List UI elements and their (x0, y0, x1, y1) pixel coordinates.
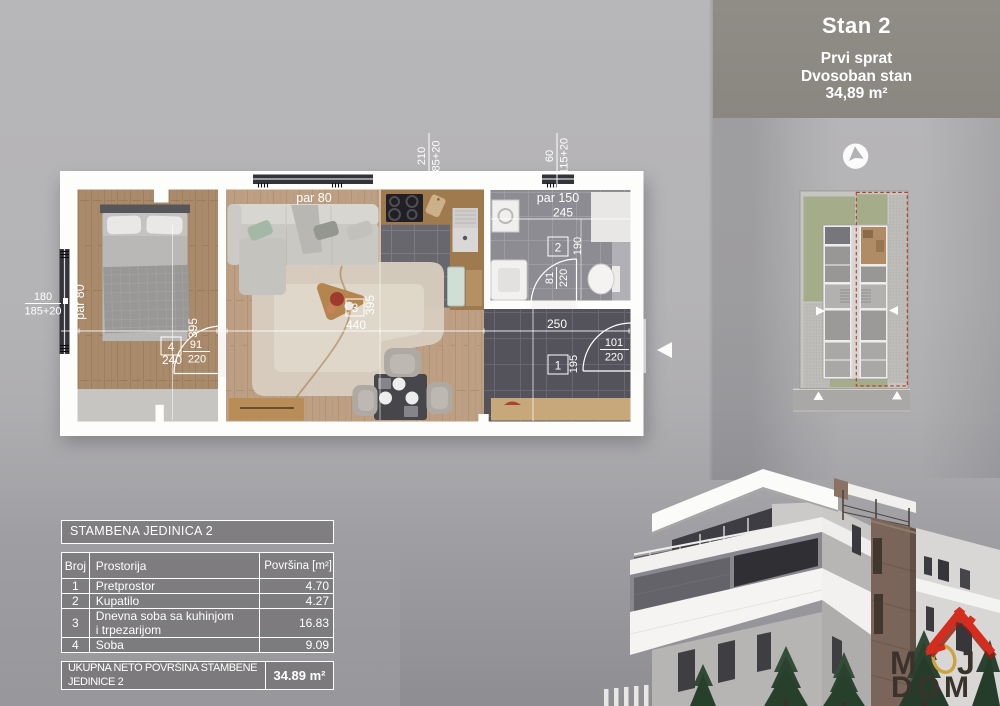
svg-text:DOM: DOM (891, 671, 973, 704)
